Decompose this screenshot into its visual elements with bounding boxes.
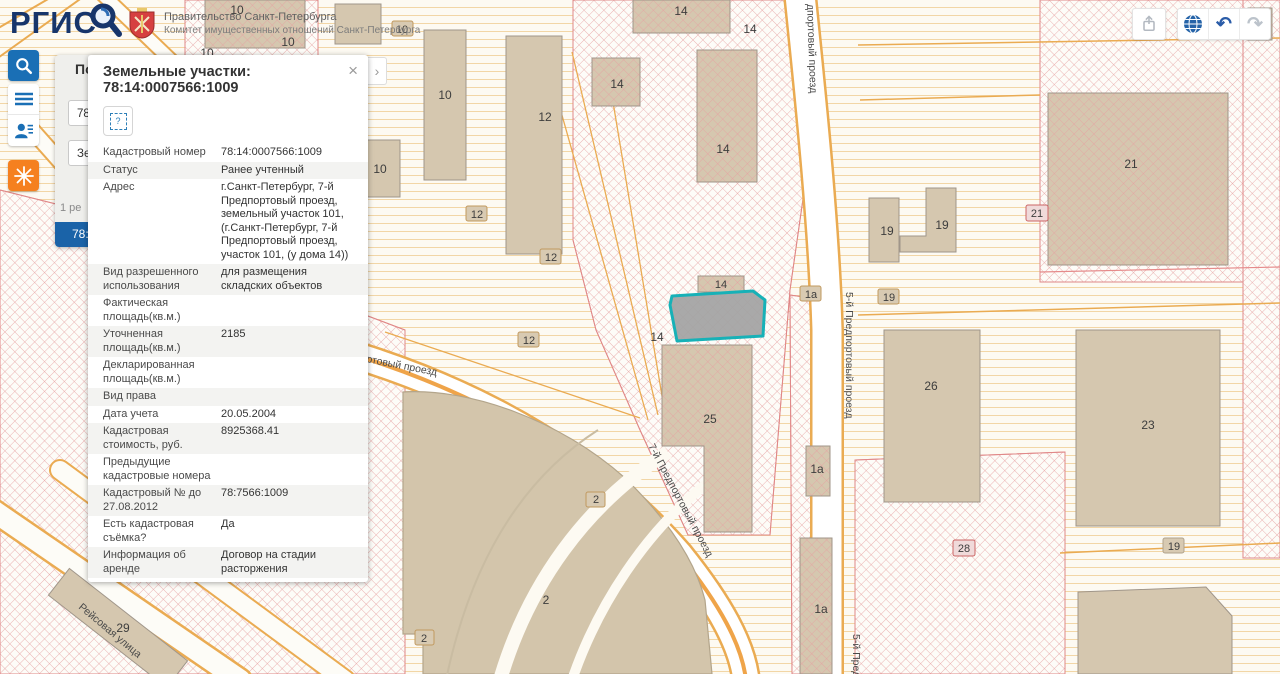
svg-text:12: 12 (545, 252, 557, 264)
svg-text:14: 14 (674, 4, 688, 18)
spb-emblem-icon (14, 166, 34, 186)
svg-text:12: 12 (471, 209, 483, 221)
svg-text:2: 2 (421, 633, 427, 645)
parcel-help-button[interactable]: ? (103, 106, 133, 136)
sidebar-button-group (8, 84, 39, 146)
svg-text:21: 21 (1124, 157, 1138, 171)
search-results-count: 1 ре (60, 202, 81, 214)
table-row: Информация об арендеДоговор на стадии ра… (88, 547, 368, 578)
search-icon (13, 55, 35, 77)
globe-icon (1183, 14, 1203, 34)
parcel-outline-help-icon: ? (110, 113, 127, 130)
table-row: Кадастровый номер78:14:0007566:1009 (88, 144, 368, 162)
magnifier-logo-icon (87, 1, 123, 39)
svg-text:19: 19 (883, 292, 895, 304)
svg-text:14: 14 (716, 142, 730, 156)
svg-text:19: 19 (935, 218, 949, 232)
svg-text:10: 10 (438, 88, 452, 102)
export-icon (1139, 14, 1159, 34)
app: 10 10 10 10 10 10 12 12 12 12 14 14 14 1… (0, 0, 1280, 674)
svg-text:12: 12 (523, 335, 535, 347)
next-panel-button[interactable]: › (368, 57, 387, 85)
government-header: Правительство Санкт-Петербурга Комитет и… (128, 8, 420, 40)
svg-text:19: 19 (880, 224, 894, 238)
svg-text:12: 12 (538, 110, 552, 124)
table-row: Кадастровая стоимость, руб.8925368.41 (88, 423, 368, 454)
undo-button[interactable]: ↶ (1208, 9, 1239, 39)
user-list-icon (14, 122, 34, 140)
user-services-button[interactable] (8, 115, 39, 146)
svg-text:28: 28 (958, 543, 970, 555)
table-row: Уточненная площадь(кв.м.)2185 (88, 326, 368, 357)
menu-button[interactable] (8, 84, 39, 115)
svg-text:5-й Предпортовый проезд: 5-й Предпортовый проезд (843, 292, 855, 419)
map-toolbar: ↶ ↷ (1177, 8, 1271, 40)
gov-line2: Комитет имущественных отношений Санкт-Пе… (164, 25, 420, 38)
redo-icon: ↷ (1247, 15, 1263, 34)
globe-button[interactable] (1178, 9, 1208, 39)
table-row: Есть кадастровая съёмка?Да (88, 516, 368, 547)
svg-text:5-й Предпортовый проезд: 5-й Предпортовый проезд (850, 634, 862, 674)
menu-icon (15, 92, 33, 106)
svg-text:10: 10 (373, 162, 387, 176)
svg-text:2: 2 (543, 593, 550, 607)
gov-line1: Правительство Санкт-Петербурга (164, 11, 420, 25)
table-row: Фактическая площадь(кв.м.) (88, 295, 368, 326)
spb-emblem-button[interactable] (8, 160, 39, 191)
rgis-logo[interactable]: РГИС (10, 5, 123, 41)
svg-text:14: 14 (650, 330, 664, 344)
selected-parcel[interactable] (670, 291, 765, 341)
table-row: СтатусРанее учтенный (88, 162, 368, 180)
table-row: Дата учета20.05.2004 (88, 406, 368, 424)
table-row: Декларированная площадь(кв.м.) (88, 357, 368, 388)
table-row: Вид права (88, 388, 368, 406)
table-row: Вид разрешенного использованиядля размещ… (88, 264, 368, 295)
svg-text:26: 26 (924, 379, 938, 393)
svg-text:14: 14 (743, 22, 757, 36)
search-tool-button[interactable] (8, 50, 39, 81)
table-row: Кадастровый № до 27.08.201278:7566:1009 (88, 485, 368, 516)
export-button[interactable] (1132, 8, 1166, 40)
svg-text:14: 14 (610, 77, 624, 91)
close-icon[interactable]: × (348, 62, 358, 79)
svg-text:21: 21 (1031, 208, 1043, 220)
table-row: Адресг.Санкт-Петербург, 7-й Предпортовый… (88, 179, 368, 264)
undo-icon: ↶ (1216, 15, 1232, 34)
svg-text:1а: 1а (810, 462, 824, 476)
spb-coat-of-arms-icon (128, 8, 156, 40)
attributes-table: Кадастровый номер78:14:0007566:1009 Стат… (88, 144, 368, 578)
popup-title: Земельные участки: 78:14:0007566:1009 (88, 55, 368, 100)
parcel-info-popup: Земельные участки: 78:14:0007566:1009 × … (88, 55, 368, 582)
svg-text:1а: 1а (814, 602, 828, 616)
svg-text:2: 2 (593, 494, 599, 506)
chevron-right-icon: › (375, 63, 380, 79)
svg-text:14: 14 (715, 279, 727, 291)
svg-text:25: 25 (703, 412, 717, 426)
svg-text:23: 23 (1141, 418, 1155, 432)
svg-text:19: 19 (1168, 541, 1180, 553)
rgis-logo-text: РГИС (10, 5, 97, 41)
table-row: Предыдущие кадастровые номера (88, 454, 368, 485)
redo-button[interactable]: ↷ (1239, 9, 1270, 39)
svg-text:1а: 1а (805, 289, 818, 301)
